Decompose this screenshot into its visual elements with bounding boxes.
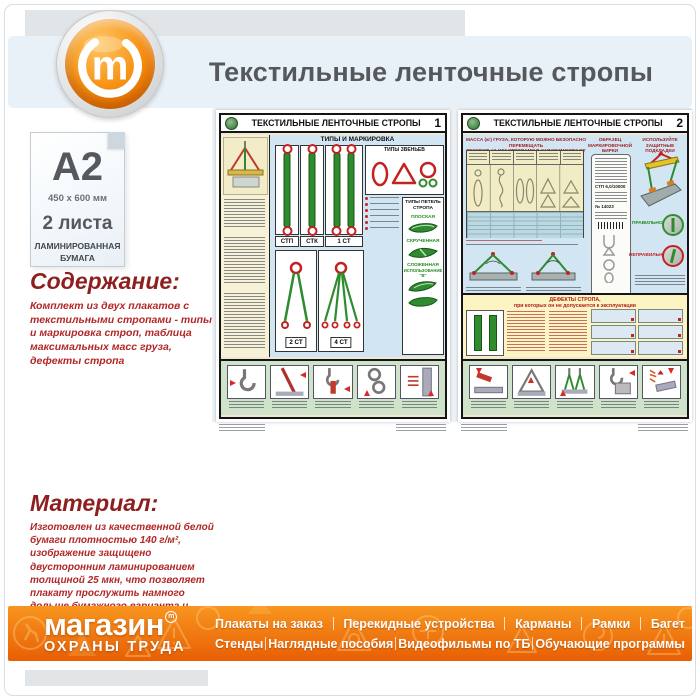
- link-types-panel: ТИПЫ ЗВЕНЬЕВ: [365, 145, 444, 195]
- defect-example: [357, 365, 396, 411]
- poster1-main-panel: ТИПЫ И МАРКИРОВКА СТП СТК 1 СТ ТИПЫ ЗВЕН…: [270, 135, 445, 357]
- crane-sling-illustration: [223, 137, 268, 195]
- poster-caption-lines: [396, 424, 446, 432]
- poster-caption-lines: [638, 424, 688, 432]
- text-lines: [370, 203, 399, 206]
- sling-method-pictograms: [467, 165, 583, 211]
- brand-name-text: магазин: [44, 607, 164, 642]
- chain-defect-icon: [357, 365, 396, 399]
- material-heading: Материал:: [30, 490, 158, 517]
- loop-sublabel: ИСПОЛЬЗОВАНИЕ "В": [403, 268, 443, 278]
- bullet-icon: [365, 209, 368, 212]
- textile-strap: [489, 315, 497, 351]
- publisher-logo-icon: [467, 117, 480, 130]
- footer-nav-row2: Стенды Наглядные пособия Видеофильмы по …: [215, 637, 685, 651]
- paper-type-line2: БУМАГА: [60, 253, 95, 263]
- four-leg-sling-panel: 4 СТ: [318, 250, 364, 352]
- double-sling-icon: [555, 365, 594, 399]
- textile-strap: [474, 315, 482, 351]
- textile-strap: [348, 153, 355, 227]
- tag-model-text: СТП 6,0/10000: [595, 184, 627, 190]
- defects-title: ДЕФЕКТЫ СТРОПА, при которых он не допуск…: [493, 297, 657, 309]
- table-header-cell: [537, 151, 560, 164]
- poster-caption-lines: [219, 424, 265, 432]
- correct-label: ПРАВИЛЬНО: [632, 221, 660, 226]
- poster2-misuse-band: [463, 359, 687, 415]
- legend-row: [365, 197, 399, 200]
- misuse-example: [642, 365, 681, 411]
- nav-link-visual-aids[interactable]: Наглядные пособия: [268, 637, 393, 651]
- correct-example-icon: [662, 214, 684, 236]
- nav-link-stands[interactable]: Стенды: [215, 637, 263, 651]
- incorrect-label: НЕПРАВИЛЬНО: [629, 253, 660, 258]
- hook-load-defect-icon: [313, 365, 352, 399]
- text-lines: [595, 192, 627, 204]
- misuse-example: [512, 365, 551, 411]
- bottom-gray-bar: [25, 670, 208, 686]
- nav-separator: [532, 637, 533, 650]
- content-heading: Содержание:: [30, 268, 180, 295]
- nav-separator: [504, 617, 505, 630]
- footer-bar: магазинm ОХРАНЫ ТРУДА Плакаты на заказ П…: [8, 606, 692, 661]
- bullet-icon: [365, 221, 368, 224]
- poster2-number: 2: [676, 116, 683, 130]
- text-lines: [359, 401, 394, 410]
- text-lines: [601, 401, 636, 410]
- text-lines: [370, 221, 399, 224]
- text-lines: [644, 401, 679, 410]
- nav-link-posters-custom[interactable]: Плакаты на заказ: [215, 617, 323, 631]
- flat-loop-icon: [406, 221, 440, 236]
- link-types-title: ТИПЫ ЗВЕНЬЕВ: [366, 147, 443, 153]
- footer-brand-logo[interactable]: магазинm ОХРАНЫ ТРУДА: [44, 611, 186, 656]
- defect-example: [227, 365, 266, 411]
- text-lines: [402, 401, 437, 410]
- sling-panel-1st: [325, 145, 363, 235]
- label-1st: 1 СТ: [325, 236, 363, 247]
- nav-separator: [333, 617, 334, 630]
- bullet-icon: [365, 197, 368, 200]
- text-lines: [224, 237, 265, 285]
- load-capacity-table: [466, 150, 584, 238]
- sling-panel-stp: [275, 145, 299, 235]
- triangle-sling-icon: [512, 365, 551, 399]
- label-stp: СТП: [275, 236, 299, 247]
- barcode-icon: [598, 222, 624, 229]
- text-lines: [466, 244, 578, 247]
- text-lines: [635, 275, 685, 287]
- loop-types-panel: ТИПЫ ПЕТЕЛЬ СТРОПА ПЛОСКАЯ СКРУЧЕННАЯ СЛ…: [402, 197, 444, 355]
- footer-nav-row1: Плакаты на заказ Перекидные устройства К…: [215, 617, 685, 631]
- nav-link-pockets[interactable]: Карманы: [515, 617, 571, 631]
- bullet-icon: [365, 203, 368, 206]
- load-values-grid: [467, 211, 583, 238]
- strap-material-legend: [365, 197, 399, 245]
- textile-strap: [284, 153, 291, 227]
- legend-row: [365, 215, 399, 218]
- nav-separator: [640, 617, 641, 630]
- poster-thumbnail-1[interactable]: ТЕКСТИЛЬНЫЕ ЛЕНТОЧНЫЕ СТРОПЫ 1 ТИПЫ И МА…: [216, 110, 450, 422]
- label-2st: 2 СТ: [285, 337, 306, 348]
- brand-mark-icon: m: [165, 611, 177, 623]
- poster1-left-column: [221, 135, 270, 357]
- poster1-defect-examples-band: [221, 359, 445, 415]
- text-lines: [557, 401, 592, 410]
- text-lines: [370, 209, 399, 212]
- nav-separator: [581, 617, 582, 630]
- text-lines: [595, 158, 627, 184]
- text-lines: [224, 199, 265, 229]
- strap-defect-illustration: [466, 310, 504, 356]
- poster2-defects-band: ДЕФЕКТЫ СТРОПА, при которых он не допуск…: [463, 293, 687, 357]
- footer-nav: Плакаты на заказ Перекидные устройства К…: [215, 606, 685, 661]
- nav-separator: [395, 637, 396, 650]
- paper-format-icon: A2 450 x 600 мм 2 листа ЛАМИНИРОВАННАЯ Б…: [30, 132, 125, 267]
- legend-row: [365, 203, 399, 206]
- brand-name: магазинm: [44, 611, 186, 639]
- text-lines: [466, 240, 542, 243]
- defect-photo: [638, 341, 683, 355]
- worn-strap-defect-icon: [400, 365, 439, 399]
- defect-example: [270, 365, 309, 411]
- paper-type: ЛАМИНИРОВАННАЯ БУМАГА: [31, 240, 124, 265]
- defect-example: [313, 365, 352, 411]
- poster1-title: ТЕКСТИЛЬНЫЕ ЛЕНТОЧНЫЕ СТРОПЫ: [238, 118, 434, 128]
- text-lines: [514, 401, 549, 410]
- poster1-frame: ТЕКСТИЛЬНЫЕ ЛЕНТОЧНЫЕ СТРОПЫ 1 ТИПЫ И МА…: [219, 113, 447, 419]
- defect-example: [400, 365, 439, 411]
- poster2-frame: ТЕКСТИЛЬНЫЕ ЛЕНТОЧНЫЕ СТРОПЫ 2 МАССА (кг…: [461, 113, 689, 419]
- page-title: Текстильные ленточные стропы (С-72): [175, 36, 687, 108]
- load-table-title-line1: МАССА (кг) ГРУЗА, КОТОРУЮ МОЖНО БЕЗОПАСН…: [466, 137, 586, 148]
- bullet-icon: [365, 227, 368, 230]
- defect-photo: [591, 309, 636, 323]
- hook-block-icon: [599, 365, 638, 399]
- nav-separator: [265, 637, 266, 650]
- sling-angle-diagram: [526, 251, 581, 285]
- two-leg-sling-panel: 2 СТ: [275, 250, 317, 352]
- paper-type-line1: ЛАМИНИРОВАННАЯ: [34, 241, 120, 251]
- poster-caption-lines: [461, 424, 507, 432]
- misuse-example: [469, 365, 508, 411]
- table-header-cell: [467, 151, 490, 164]
- types-section-title: ТИПЫ И МАРКИРОВКА: [270, 136, 445, 143]
- table-header-row: [467, 151, 583, 165]
- brand-subtitle: ОХРАНЫ ТРУДА: [44, 639, 186, 656]
- shackle-shapes-icon: [595, 231, 629, 283]
- text-lines: [471, 401, 506, 410]
- publisher-logo-icon: [225, 117, 238, 130]
- text-lines: [272, 401, 307, 410]
- legend-row: [365, 227, 399, 230]
- textile-strap: [309, 153, 316, 227]
- tag-sample-title: ОБРАЗЕЦ МАРКИРОВОЧНОЙ БИРКИ: [586, 137, 634, 154]
- link-rings-icon: [366, 154, 441, 192]
- table-header-cell: [490, 151, 513, 164]
- text-lines: [229, 401, 264, 410]
- strap-angle-defect-icon: [270, 365, 309, 399]
- defects-title-line1: ДЕФЕКТЫ СТРОПА,: [549, 297, 600, 303]
- defect-photo: [591, 325, 636, 339]
- incorrect-example-icon: [662, 245, 684, 267]
- slab-lifting-illustration: [637, 148, 685, 212]
- nav-link-frames[interactable]: Рамки: [592, 617, 630, 631]
- legend-row: [365, 221, 399, 224]
- hook-defect-icon: [227, 365, 266, 399]
- logo-m-icon: m: [65, 19, 155, 109]
- misuse-example: [555, 365, 594, 411]
- shop-logo[interactable]: m: [56, 10, 164, 118]
- table-header-cell: [514, 151, 537, 164]
- poster-thumbnail-2[interactable]: ТЕКСТИЛЬНЫЕ ЛЕНТОЧНЫЕ СТРОПЫ 2 МАССА (кг…: [458, 110, 692, 422]
- marking-tag-sample: СТП 6,0/10000 № 14023: [591, 154, 631, 309]
- defect-photo-grid: [591, 309, 683, 355]
- text-lines: [507, 311, 545, 353]
- defect-photo: [638, 325, 683, 339]
- tag-number-text: № 14023: [595, 204, 627, 210]
- defect-photo: [638, 309, 683, 323]
- content-text: Комплект из двух плакатов с текстильными…: [30, 300, 214, 368]
- misuse-example: [599, 365, 638, 411]
- folded-loop-icon: [406, 295, 440, 310]
- folded-loop-icon: [406, 279, 440, 294]
- loop-label-folded: СЛОЖЕННАЯ: [403, 263, 443, 268]
- text-lines: [315, 401, 350, 410]
- twisted-loop-icon: [406, 245, 440, 260]
- legend-row: [365, 209, 399, 212]
- nav-link-safety-videos[interactable]: Видеофильмы по ТБ: [398, 637, 530, 651]
- text-lines: [370, 197, 399, 200]
- nav-link-baguette[interactable]: Багет: [651, 617, 685, 631]
- poster2-title: ТЕКСТИЛЬНЫЕ ЛЕНТОЧНЫЕ СТРОПЫ: [480, 118, 676, 128]
- format-label: A2: [31, 145, 124, 190]
- four-leg-sling-icon: [319, 251, 363, 351]
- poster1-number: 1: [434, 116, 441, 130]
- defect-photo: [591, 341, 636, 355]
- poster2-upper-panel: МАССА (кг) ГРУЗА, КОТОРУЮ МОЖНО БЕЗОПАСН…: [463, 135, 687, 293]
- two-leg-sling-icon: [276, 251, 316, 351]
- loop-label-twisted: СКРУЧЕННАЯ: [403, 239, 443, 244]
- poster2-header: ТЕКСТИЛЬНЫЕ ЛЕНТОЧНЫЕ СТРОПЫ 2: [463, 115, 687, 133]
- sheet-count: 2 листа: [31, 213, 124, 235]
- textile-strap: [333, 153, 340, 227]
- bullet-icon: [365, 215, 368, 218]
- loop-label-flat: ПЛОСКАЯ: [403, 215, 443, 220]
- sling-panel-stk: [300, 145, 324, 235]
- text-lines: [549, 311, 587, 353]
- loop-types-title: ТИПЫ ПЕТЕЛЬ СТРОПА: [403, 200, 443, 212]
- label-stk: СТК: [300, 236, 324, 247]
- nav-link-flip-devices[interactable]: Перекидные устройства: [343, 617, 494, 631]
- text-lines: [224, 293, 265, 349]
- sling-angle-diagram: [466, 251, 521, 285]
- text-lines: [595, 212, 627, 220]
- nav-link-training-programs[interactable]: Обучающие программы: [535, 637, 685, 651]
- edge-cut-icon: [469, 365, 508, 399]
- text-lines: [370, 227, 399, 230]
- poster1-header: ТЕКСТИЛЬНЫЕ ЛЕНТОЧНЫЕ СТРОПЫ 1: [221, 115, 445, 133]
- table-header-cell: [561, 151, 583, 164]
- label-4st: 4 СТ: [330, 337, 351, 348]
- format-dimensions: 450 x 600 мм: [31, 193, 124, 204]
- chemical-spray-icon: [642, 365, 681, 399]
- text-lines: [370, 215, 399, 218]
